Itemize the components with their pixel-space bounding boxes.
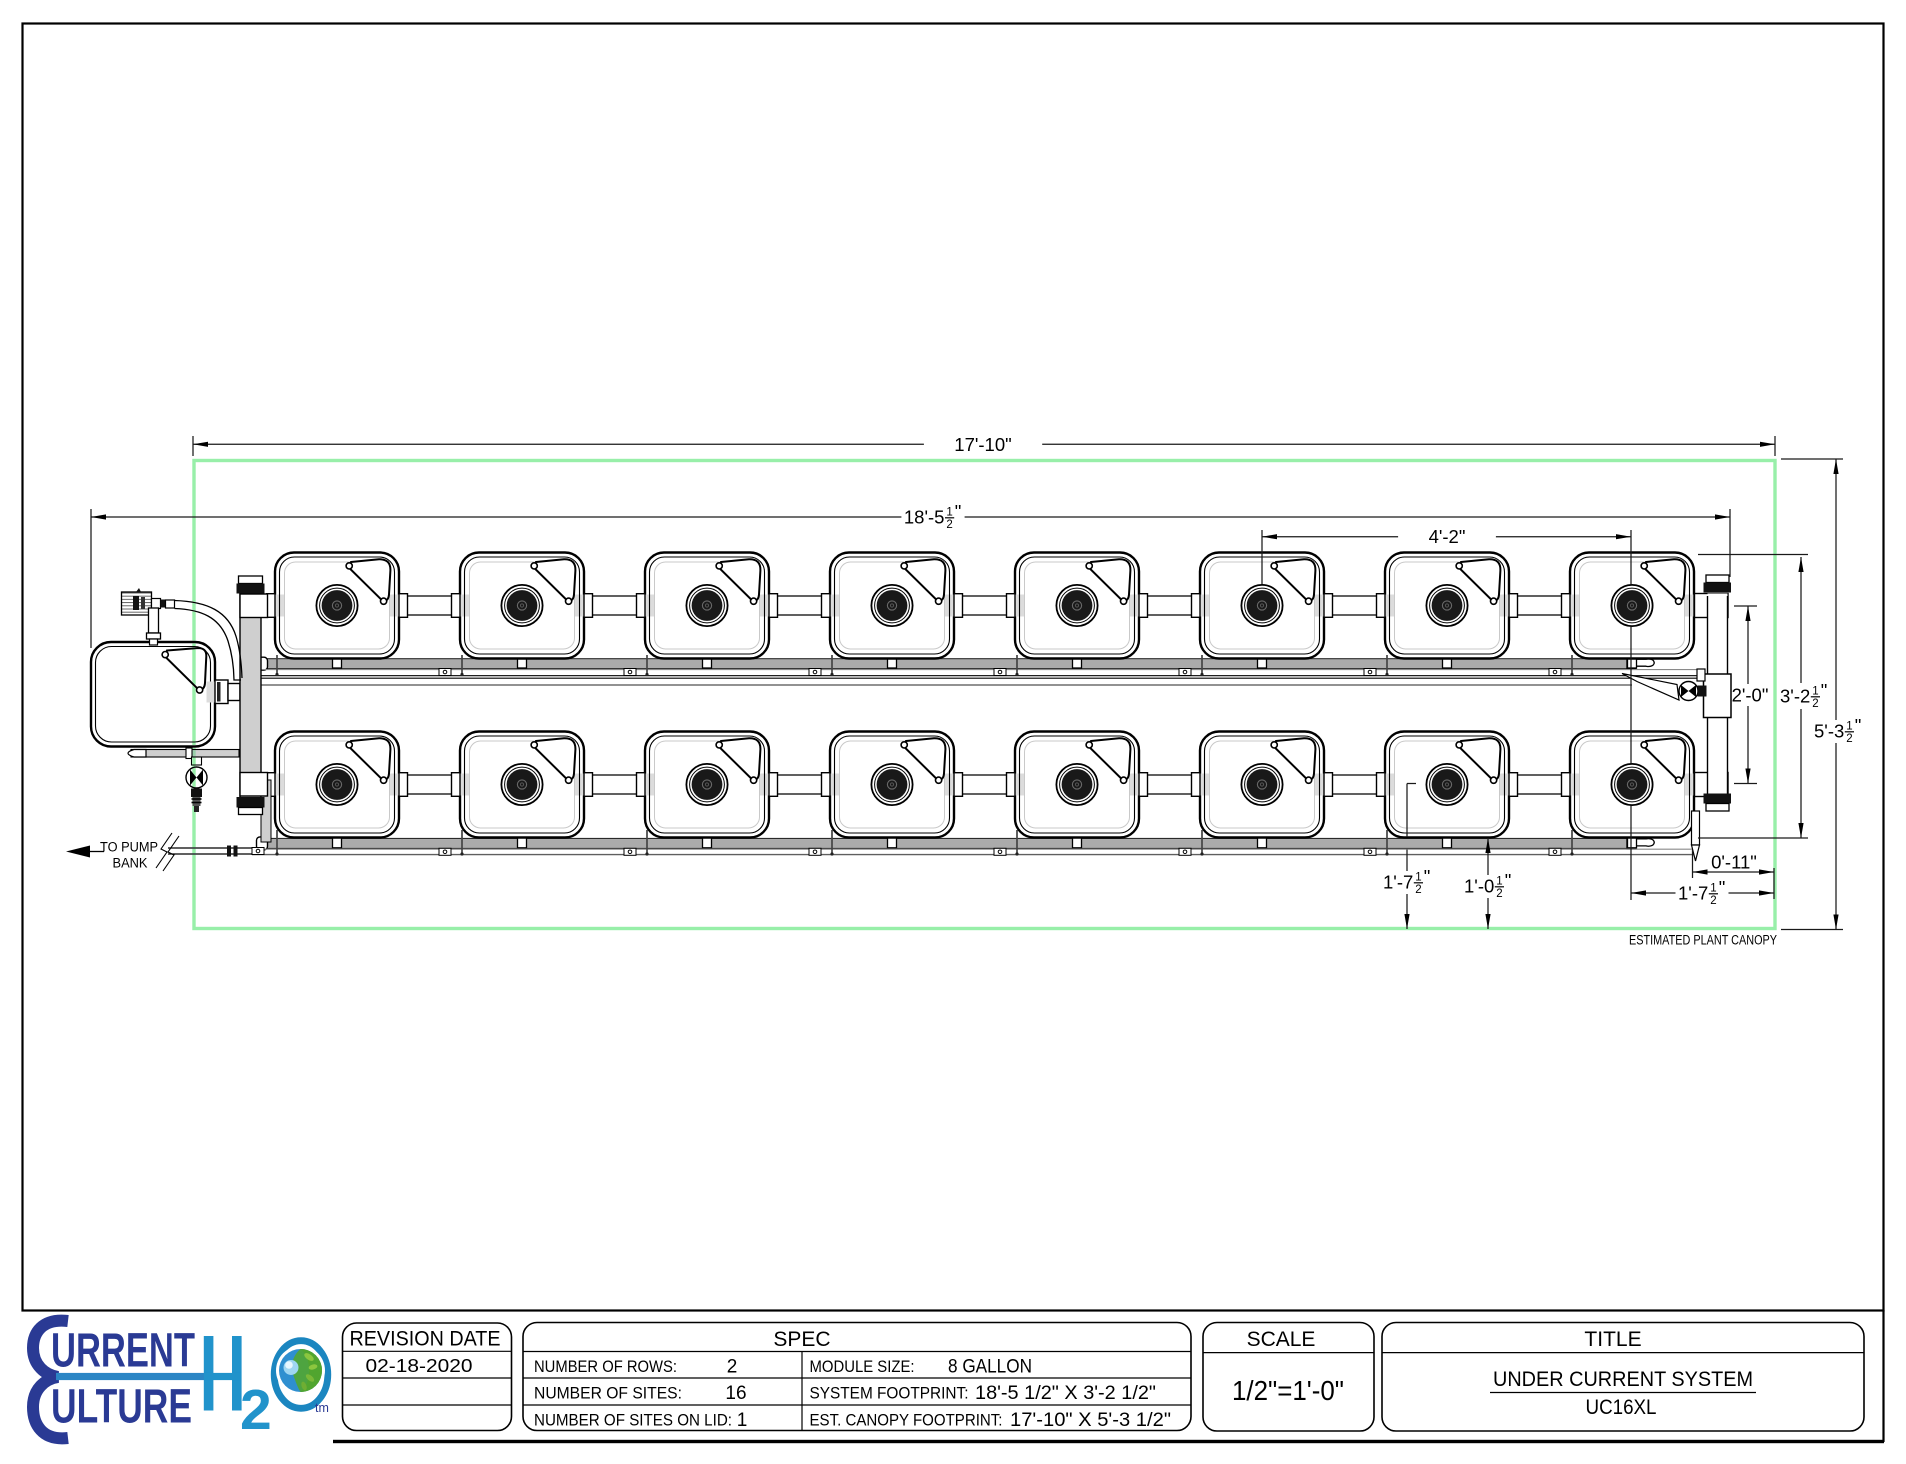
svg-text:1'-7: 1'-7 bbox=[1678, 883, 1708, 904]
svg-text:18'-5: 18'-5 bbox=[904, 507, 945, 528]
svg-text:2: 2 bbox=[1812, 698, 1818, 710]
svg-text:": " bbox=[955, 501, 962, 522]
svg-text:2: 2 bbox=[1415, 884, 1421, 896]
svg-text:2'-0": 2'-0" bbox=[1732, 685, 1769, 706]
svg-text:17'-10": 17'-10" bbox=[954, 434, 1011, 455]
svg-text:2: 2 bbox=[946, 519, 952, 531]
svg-text:2: 2 bbox=[1496, 888, 1502, 900]
svg-text:REVISION DATE: REVISION DATE bbox=[350, 1328, 501, 1351]
svg-text:TO PUMP: TO PUMP bbox=[100, 840, 158, 855]
svg-text:NUMBER OF SITES ON LID:: NUMBER OF SITES ON LID: bbox=[534, 1411, 732, 1429]
svg-text:16: 16 bbox=[725, 1383, 746, 1404]
svg-text:5'-3: 5'-3 bbox=[1814, 721, 1844, 742]
svg-text:UNDER CURRENT SYSTEM: UNDER CURRENT SYSTEM bbox=[1493, 1367, 1753, 1391]
svg-text:3'-2: 3'-2 bbox=[1780, 686, 1810, 707]
svg-text:SYSTEM FOOTPRINT:: SYSTEM FOOTPRINT: bbox=[810, 1385, 969, 1403]
svg-text:1: 1 bbox=[1496, 876, 1502, 888]
svg-text:tm: tm bbox=[315, 1401, 329, 1415]
svg-text:": " bbox=[1424, 866, 1431, 887]
svg-text:1: 1 bbox=[1812, 686, 1818, 698]
svg-text:": " bbox=[1855, 715, 1862, 736]
svg-text:EST. CANOPY FOOTPRINT:: EST. CANOPY FOOTPRINT: bbox=[810, 1411, 1003, 1429]
svg-text:17'-10" X 5'-3 1/2": 17'-10" X 5'-3 1/2" bbox=[1010, 1410, 1171, 1431]
svg-text:1: 1 bbox=[737, 1410, 748, 1431]
svg-text:02-18-2020: 02-18-2020 bbox=[366, 1355, 473, 1376]
svg-text:BANK: BANK bbox=[113, 856, 148, 871]
svg-text:2: 2 bbox=[1846, 733, 1852, 745]
svg-text:1'-0: 1'-0 bbox=[1464, 876, 1494, 897]
svg-text:TITLE: TITLE bbox=[1584, 1328, 1641, 1351]
svg-text:ULTURE: ULTURE bbox=[51, 1381, 192, 1434]
svg-text:": " bbox=[1505, 870, 1512, 891]
svg-text:SCALE: SCALE bbox=[1247, 1328, 1316, 1351]
svg-text:1: 1 bbox=[1846, 721, 1852, 733]
svg-text:MODULE SIZE:: MODULE SIZE: bbox=[810, 1358, 915, 1376]
svg-text:SPEC: SPEC bbox=[773, 1328, 830, 1351]
svg-text:2: 2 bbox=[727, 1357, 738, 1378]
svg-text:2: 2 bbox=[240, 1378, 272, 1442]
svg-text:8 GALLON: 8 GALLON bbox=[948, 1357, 1032, 1378]
svg-text:UC16XL: UC16XL bbox=[1586, 1395, 1657, 1419]
svg-text:ESTIMATED PLANT CANOPY: ESTIMATED PLANT CANOPY bbox=[1629, 933, 1777, 948]
svg-text:": " bbox=[1719, 877, 1726, 898]
svg-text:1: 1 bbox=[1415, 872, 1421, 884]
svg-text:NUMBER OF SITES:: NUMBER OF SITES: bbox=[534, 1385, 682, 1403]
svg-text:": " bbox=[1821, 680, 1828, 701]
svg-text:1: 1 bbox=[946, 507, 952, 519]
svg-text:2: 2 bbox=[1710, 895, 1716, 907]
svg-text:0'-11": 0'-11" bbox=[1711, 852, 1757, 873]
svg-text:4'-2": 4'-2" bbox=[1429, 526, 1466, 547]
svg-text:18'-5 1/2" X 3'-2 1/2": 18'-5 1/2" X 3'-2 1/2" bbox=[975, 1383, 1156, 1404]
svg-text:URRENT: URRENT bbox=[51, 1324, 195, 1377]
svg-text:1: 1 bbox=[1710, 883, 1716, 895]
svg-text:1/2"=1'-0": 1/2"=1'-0" bbox=[1232, 1375, 1344, 1406]
svg-text:1'-7: 1'-7 bbox=[1383, 872, 1413, 893]
svg-text:NUMBER OF ROWS:: NUMBER OF ROWS: bbox=[534, 1358, 677, 1376]
